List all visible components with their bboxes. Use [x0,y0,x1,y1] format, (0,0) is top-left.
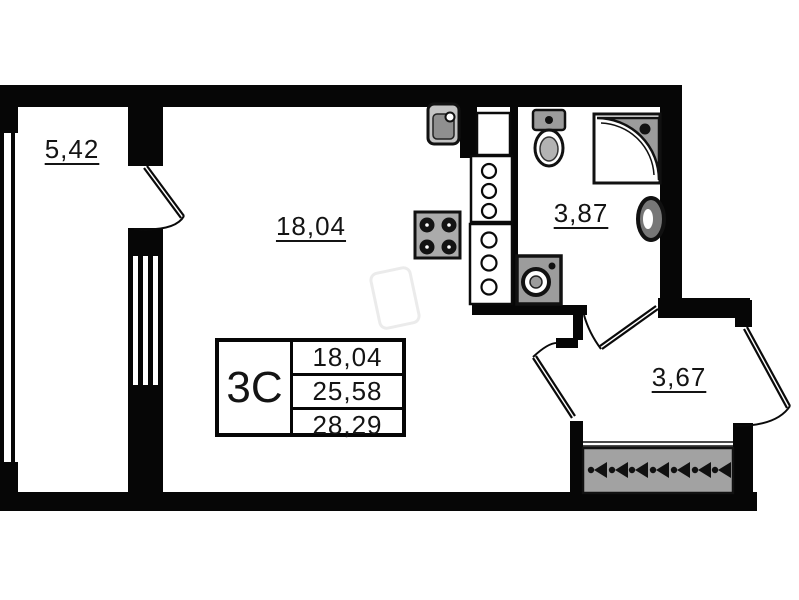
bathroom-area-label: 3,87 [546,198,616,229]
watermark [370,266,421,329]
door-swing-arc [533,343,558,357]
hallway-door-jamb [573,308,583,340]
stove-icon [415,212,460,258]
door-leaf [147,166,184,216]
door-leaf [602,309,658,349]
balcony-glazing-line-inner [11,133,15,463]
legend-apartment-area: 25,58 [293,373,402,410]
apartment-type-code: 3С [219,342,293,433]
wall-top [0,85,682,107]
hallway-area-label: 3,67 [643,362,715,393]
room-hallway-door-icon [533,343,575,418]
wall-balcony-band-top [128,105,163,166]
wardrobe-hangers-icon [583,442,733,493]
window-slit [143,256,148,385]
wall-bathroom-right [660,85,682,300]
door-swing-arc [584,315,601,349]
washbasin-icon [638,198,664,240]
window-slit [153,256,158,385]
kitchen-cabinet-icon [470,113,512,304]
window-slit [133,256,138,385]
balcony-area-label: 5,42 [36,134,108,165]
washing-machine-icon [517,256,561,304]
toilet-icon [533,110,565,166]
door-leaf [747,327,790,406]
wall-balcony-band-bottom [128,387,163,492]
door-leaf [144,168,181,218]
floor-plan-drawing [0,0,799,600]
hallway-wall-stub [556,338,578,348]
wall-balcony-band-mid [128,228,163,254]
legend-values-column: 18,04 25,58 28,29 [293,342,402,433]
balcony-glazing-line-outer [0,133,4,463]
door-swing-arc [134,216,184,229]
legend-table: 3С 18,04 25,58 28,29 [215,338,406,437]
wall-entrance-bottom [733,423,753,492]
kitchen-sink-icon [428,104,459,144]
shower-icon [594,114,660,183]
wall-wardrobe-left [570,421,583,492]
door-leaf [533,358,572,418]
vent-shaft [460,105,477,158]
balcony-window-icon [133,256,158,385]
wall-bottom [0,492,757,511]
entrance-jamb-top [735,300,752,327]
balcony-door-icon [134,166,184,229]
living-room-area-label: 18,04 [268,211,354,242]
legend-living-area: 18,04 [293,342,402,373]
door-leaf [744,329,787,408]
bathroom-door-icon [584,306,658,349]
door-leaf [536,356,575,416]
wall-bathroom-bottom [472,305,587,315]
legend-total-area: 28,29 [293,410,402,441]
entrance-door-icon [736,327,790,426]
wall-left-top [0,85,18,133]
door-leaf [600,306,656,346]
floor-plan: 5,42 18,04 3,87 3,67 3С 18,04 25,58 28,2… [0,0,799,600]
